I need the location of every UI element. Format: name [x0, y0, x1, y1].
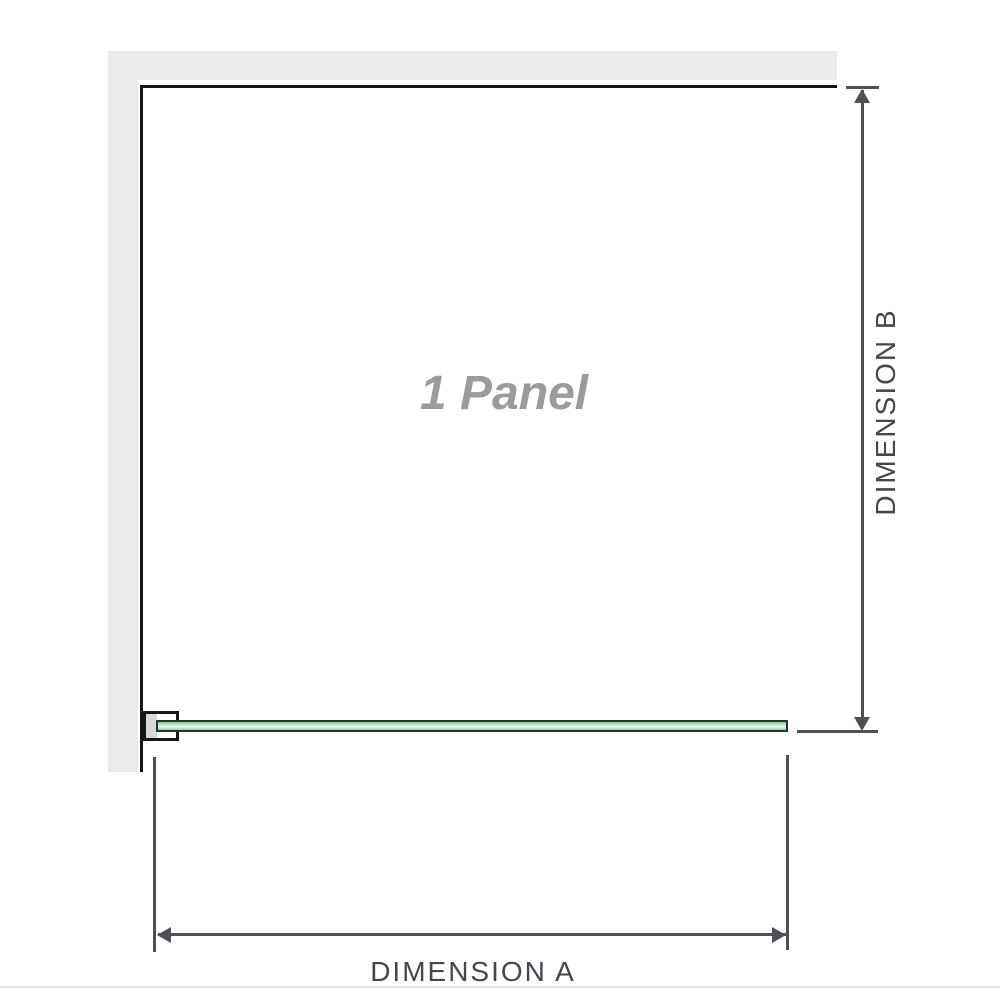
wall-edge-left — [140, 85, 143, 772]
arrow-left-icon — [157, 927, 171, 943]
arrow-right-icon — [772, 927, 786, 943]
dimension-a-extension-right — [786, 755, 789, 950]
wall-top — [108, 51, 837, 80]
dimension-a-line — [158, 933, 788, 936]
panel-count-label: 1 Panel — [420, 370, 590, 420]
bottom-baseline-rule — [0, 986, 1000, 988]
arrow-up-icon — [854, 89, 870, 103]
wall-left — [108, 51, 138, 772]
arrow-down-icon — [854, 717, 870, 731]
dimension-b-line — [861, 90, 864, 718]
dimension-a-label: DIMENSION A — [157, 955, 789, 989]
wall-edge-top — [140, 85, 837, 88]
dimension-a-extension-left — [153, 757, 156, 952]
dimension-b-label: DIMENSION B — [871, 292, 901, 532]
glass-panel — [156, 720, 788, 732]
diagram-canvas: 1 Panel DIMENSION B DIMENSION A — [0, 0, 1000, 1000]
